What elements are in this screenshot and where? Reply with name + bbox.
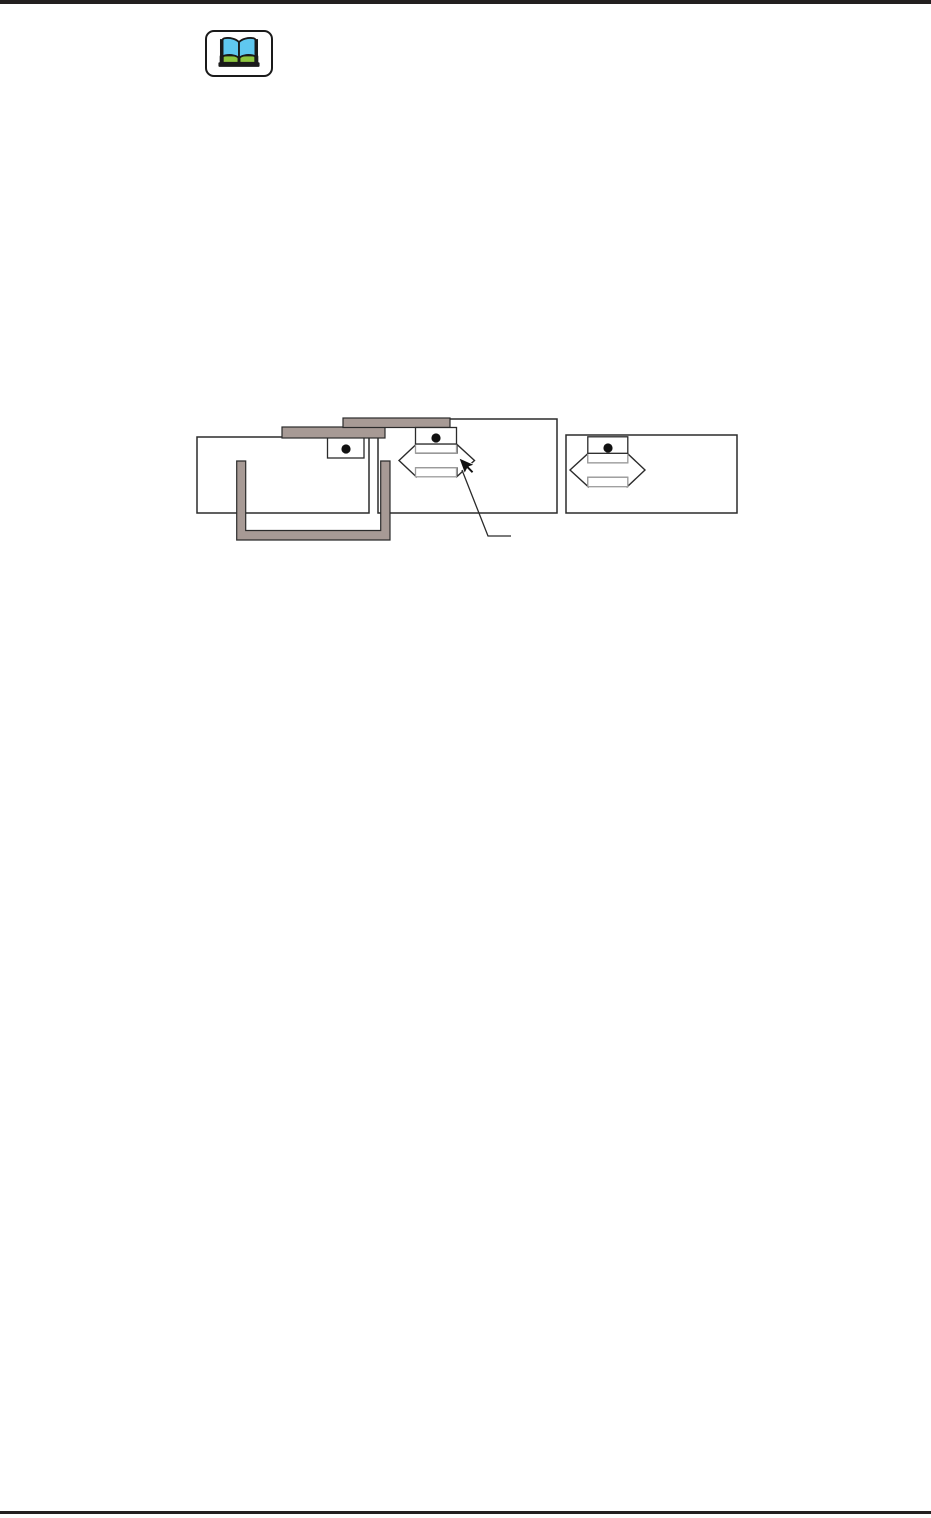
open-book-icon [214, 35, 264, 72]
slider-knob-dot [341, 444, 350, 453]
slider-adjustment-figure [190, 400, 755, 555]
slider-knob-dot [603, 443, 612, 452]
top-rule [0, 0, 931, 4]
bottom-rule [0, 1511, 931, 1514]
guide-box-lower [588, 477, 628, 486]
slider-knob-dot [431, 433, 440, 442]
book-left-page [223, 38, 239, 59]
guide-box-upper [416, 444, 457, 453]
guide-box-upper [588, 453, 628, 463]
media-strip-lower [282, 427, 385, 438]
note-icon-frame [205, 30, 273, 77]
manual-page [0, 0, 931, 1518]
media-strip-upper [343, 418, 450, 428]
book-right-page [239, 38, 255, 59]
guide-box-lower [416, 468, 457, 477]
